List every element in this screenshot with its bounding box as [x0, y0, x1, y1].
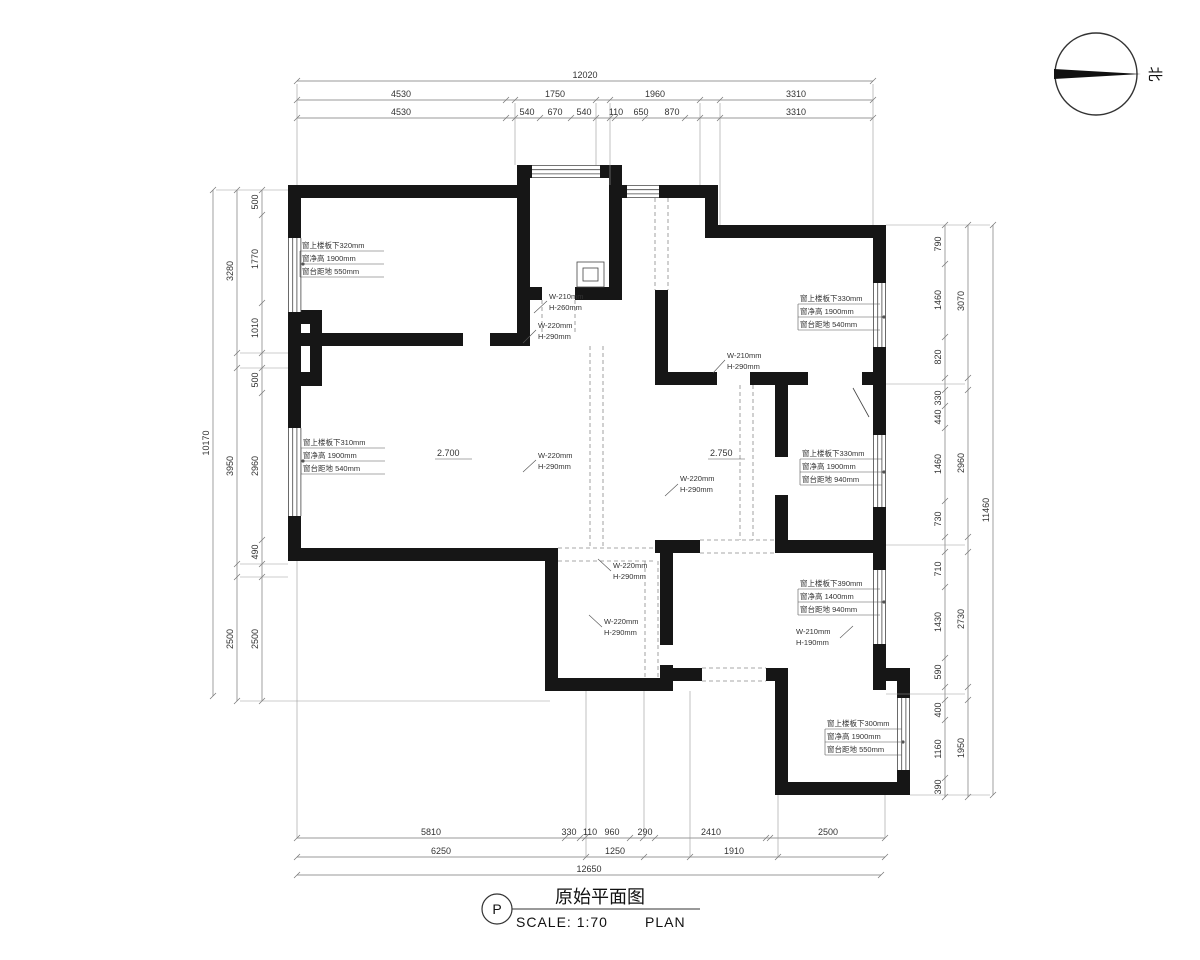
north-needle-icon: [1054, 69, 1141, 79]
dim-label: 1910: [724, 846, 744, 856]
dim-label: 1950: [956, 738, 966, 758]
opening-note-line: H-290mm: [538, 332, 571, 341]
window-note-5: 窗上楼板下390mm 窗净高 1400mm 窗台距地 940mm: [798, 578, 886, 615]
opening-note-3: W-210mm H-290mm: [713, 351, 761, 373]
opening-note-line: H-290mm: [538, 462, 571, 471]
window-note-line: 窗上楼板下330mm: [802, 448, 865, 458]
window-note-line: 窗台距地 940mm: [800, 604, 857, 614]
window-note-line: 窗上楼板下390mm: [800, 578, 863, 588]
opening-note-line: W-220mm: [613, 561, 647, 570]
dim-label: 1460: [933, 454, 943, 474]
opening-note-line: W-210mm: [727, 351, 761, 360]
window-note-2: 窗上楼板下310mm 窗净高 1900mm 窗台距地 540mm: [301, 437, 385, 474]
dim-label: 730: [933, 511, 943, 526]
window-note-line: 窗净高 1400mm: [800, 591, 854, 601]
dim-label: 790: [933, 236, 943, 251]
opening-note-line: W-220mm: [680, 474, 714, 483]
dim-label: 5810: [421, 827, 441, 837]
dim-label: 2410: [701, 827, 721, 837]
dim-label: 12020: [572, 70, 597, 80]
opening-note-2: W-220mm H-290mm: [523, 321, 572, 343]
opening-note-line: W-220mm: [538, 321, 572, 330]
window-note-line: 窗台距地 550mm: [827, 744, 884, 754]
dim-label: 1770: [250, 249, 260, 269]
dim-label: 290: [637, 827, 652, 837]
dim-label: 1460: [933, 290, 943, 310]
dim-label: 1430: [933, 612, 943, 632]
window-note-line: 窗台距地 940mm: [802, 474, 859, 484]
opening-note-line: H-290mm: [680, 485, 713, 494]
window-note-1: 窗上楼板下320mm 窗净高 1900mm 窗台距地 550mm: [300, 240, 384, 277]
window-top-right: [627, 185, 659, 198]
dim-label: 540: [519, 107, 534, 117]
opening-note-line: H-290mm: [727, 362, 760, 371]
dim-label: 670: [547, 107, 562, 117]
opening-note-line: H-190mm: [796, 638, 829, 647]
opening-note-line: W-210mm: [796, 627, 830, 636]
dim-label: 330: [561, 827, 576, 837]
title-block: P 原始平面图 SCALE: 1:70 PLAN: [482, 887, 700, 930]
dim-label: 3070: [956, 291, 966, 311]
window-note-line: 窗净高 1900mm: [303, 450, 357, 460]
dim-label: 3950: [225, 456, 235, 476]
door-leaf: [853, 388, 869, 417]
opening-note-5: W-220mm H-290mm: [665, 474, 714, 496]
north-label: 北: [1146, 66, 1163, 81]
window-right-lower: [873, 570, 886, 644]
opening-note-line: W-220mm: [604, 617, 638, 626]
window-note-line: 窗净高 1900mm: [802, 461, 856, 471]
dim-label: 3280: [225, 261, 235, 281]
dim-label: 6250: [431, 846, 451, 856]
window-note-line: 窗台距地 550mm: [302, 266, 359, 276]
opening-note-4: W-220mm H-290mm: [523, 451, 572, 472]
dim-label: 500: [250, 194, 260, 209]
dim-label: 870: [664, 107, 679, 117]
dim-label: 710: [933, 561, 943, 576]
dim-label: 820: [933, 349, 943, 364]
dim-label: 12650: [576, 864, 601, 874]
plan-mark: P: [492, 901, 501, 917]
dim-label: 440: [933, 409, 943, 424]
dim-label: 110: [609, 107, 623, 117]
window-note-6: 窗上楼板下300mm 窗净高 1900mm 窗台距地 550mm: [825, 718, 905, 755]
window-left-lower: [288, 428, 301, 516]
dim-labels-left: 500 1770 1010 500 2960 490 2500 3280 395…: [201, 194, 260, 649]
dim-label: 1750: [545, 89, 565, 99]
window-note-line: 窗上楼板下300mm: [827, 718, 890, 728]
window-note-line: 窗净高 1900mm: [302, 253, 356, 263]
dim-label: 1160: [933, 739, 943, 758]
window-note-line: 窗台距地 540mm: [800, 319, 857, 329]
opening-note-8: W-210mm H-190mm: [796, 626, 853, 647]
dim-label: 1960: [645, 89, 665, 99]
window-note-line: 窗净高 1900mm: [827, 731, 881, 741]
dim-label: 4530: [391, 107, 411, 117]
opening-note-line: H-290mm: [613, 572, 646, 581]
dim-label: 1010: [250, 318, 260, 338]
window-note-line: 窗台距地 540mm: [303, 463, 360, 473]
drawing-title: 原始平面图: [555, 887, 645, 907]
window-right-upper: [873, 283, 886, 347]
dim-label: 500: [250, 372, 260, 387]
dim-labels-right: 790 1460 820 330 440 1460 730 710 1430 5…: [933, 236, 991, 794]
dim-label: 2500: [225, 629, 235, 649]
window-note-3: 窗上楼板下330mm 窗净高 1900mm 窗台距地 540mm: [798, 293, 886, 330]
window-note-line: 窗净高 1900mm: [800, 306, 854, 316]
dim-label: 2960: [250, 456, 260, 476]
opening-note-line: H-260mm: [549, 303, 582, 312]
dim-label: 3310: [786, 89, 806, 99]
dim-label: 10170: [201, 430, 211, 455]
closet-symbol: [577, 262, 604, 287]
window-note-line: 窗上楼板下320mm: [302, 240, 365, 250]
dim-bottom-row2: [294, 854, 888, 860]
dim-label: 330: [933, 390, 943, 405]
opening-note-line: H-290mm: [604, 628, 637, 637]
north-arrow: 北: [1054, 33, 1163, 115]
dim-label: 540: [576, 107, 591, 117]
window-note-line: 窗上楼板下330mm: [800, 293, 863, 303]
dim-labels-top: 12020 4530 1750 1960 3310 4530 540 670 5…: [391, 70, 806, 117]
dim-label: 2960: [956, 453, 966, 473]
dim-label: 11460: [981, 498, 991, 522]
dim-label: 2500: [818, 827, 838, 837]
window-note-line: 窗上楼板下310mm: [303, 437, 366, 447]
dim-label: 590: [933, 664, 943, 679]
opening-note-7: W-220mm H-290mm: [589, 615, 638, 637]
window-left-upper: [288, 238, 301, 312]
level-hall: 2.750: [710, 448, 733, 458]
floor-plan-drawing: 12020 4530 1750 1960 3310 4530 540 670 5…: [0, 0, 1200, 960]
plan-label: PLAN: [645, 914, 686, 930]
dim-labels-bottom: 5810 330 110 960 290 2410 2500 6250 1250…: [421, 827, 838, 874]
window-note-4: 窗上楼板下330mm 窗净高 1900mm 窗台距地 940mm: [800, 448, 886, 485]
level-living: 2.700: [437, 448, 460, 458]
dim-label: 400: [933, 702, 943, 717]
dim-label: 2730: [956, 609, 966, 629]
dim-label: 110: [583, 827, 597, 837]
window-top-bump: [532, 165, 600, 178]
dim-label: 650: [633, 107, 648, 117]
opening-note-line: W-220mm: [538, 451, 572, 460]
dim-label: 490: [250, 544, 260, 559]
dim-label: 4530: [391, 89, 411, 99]
dim-label: 390: [933, 779, 943, 794]
window-balcony: [897, 698, 910, 770]
opening-note-line: W-210mm: [549, 292, 583, 301]
dim-label: 960: [604, 827, 619, 837]
opening-note-6: W-220mm H-290mm: [598, 559, 647, 581]
dim-label: 1250: [605, 846, 625, 856]
dim-label: 3310: [786, 107, 806, 117]
scale-label: SCALE: 1:70: [516, 914, 608, 930]
dim-label: 2500: [250, 629, 260, 649]
